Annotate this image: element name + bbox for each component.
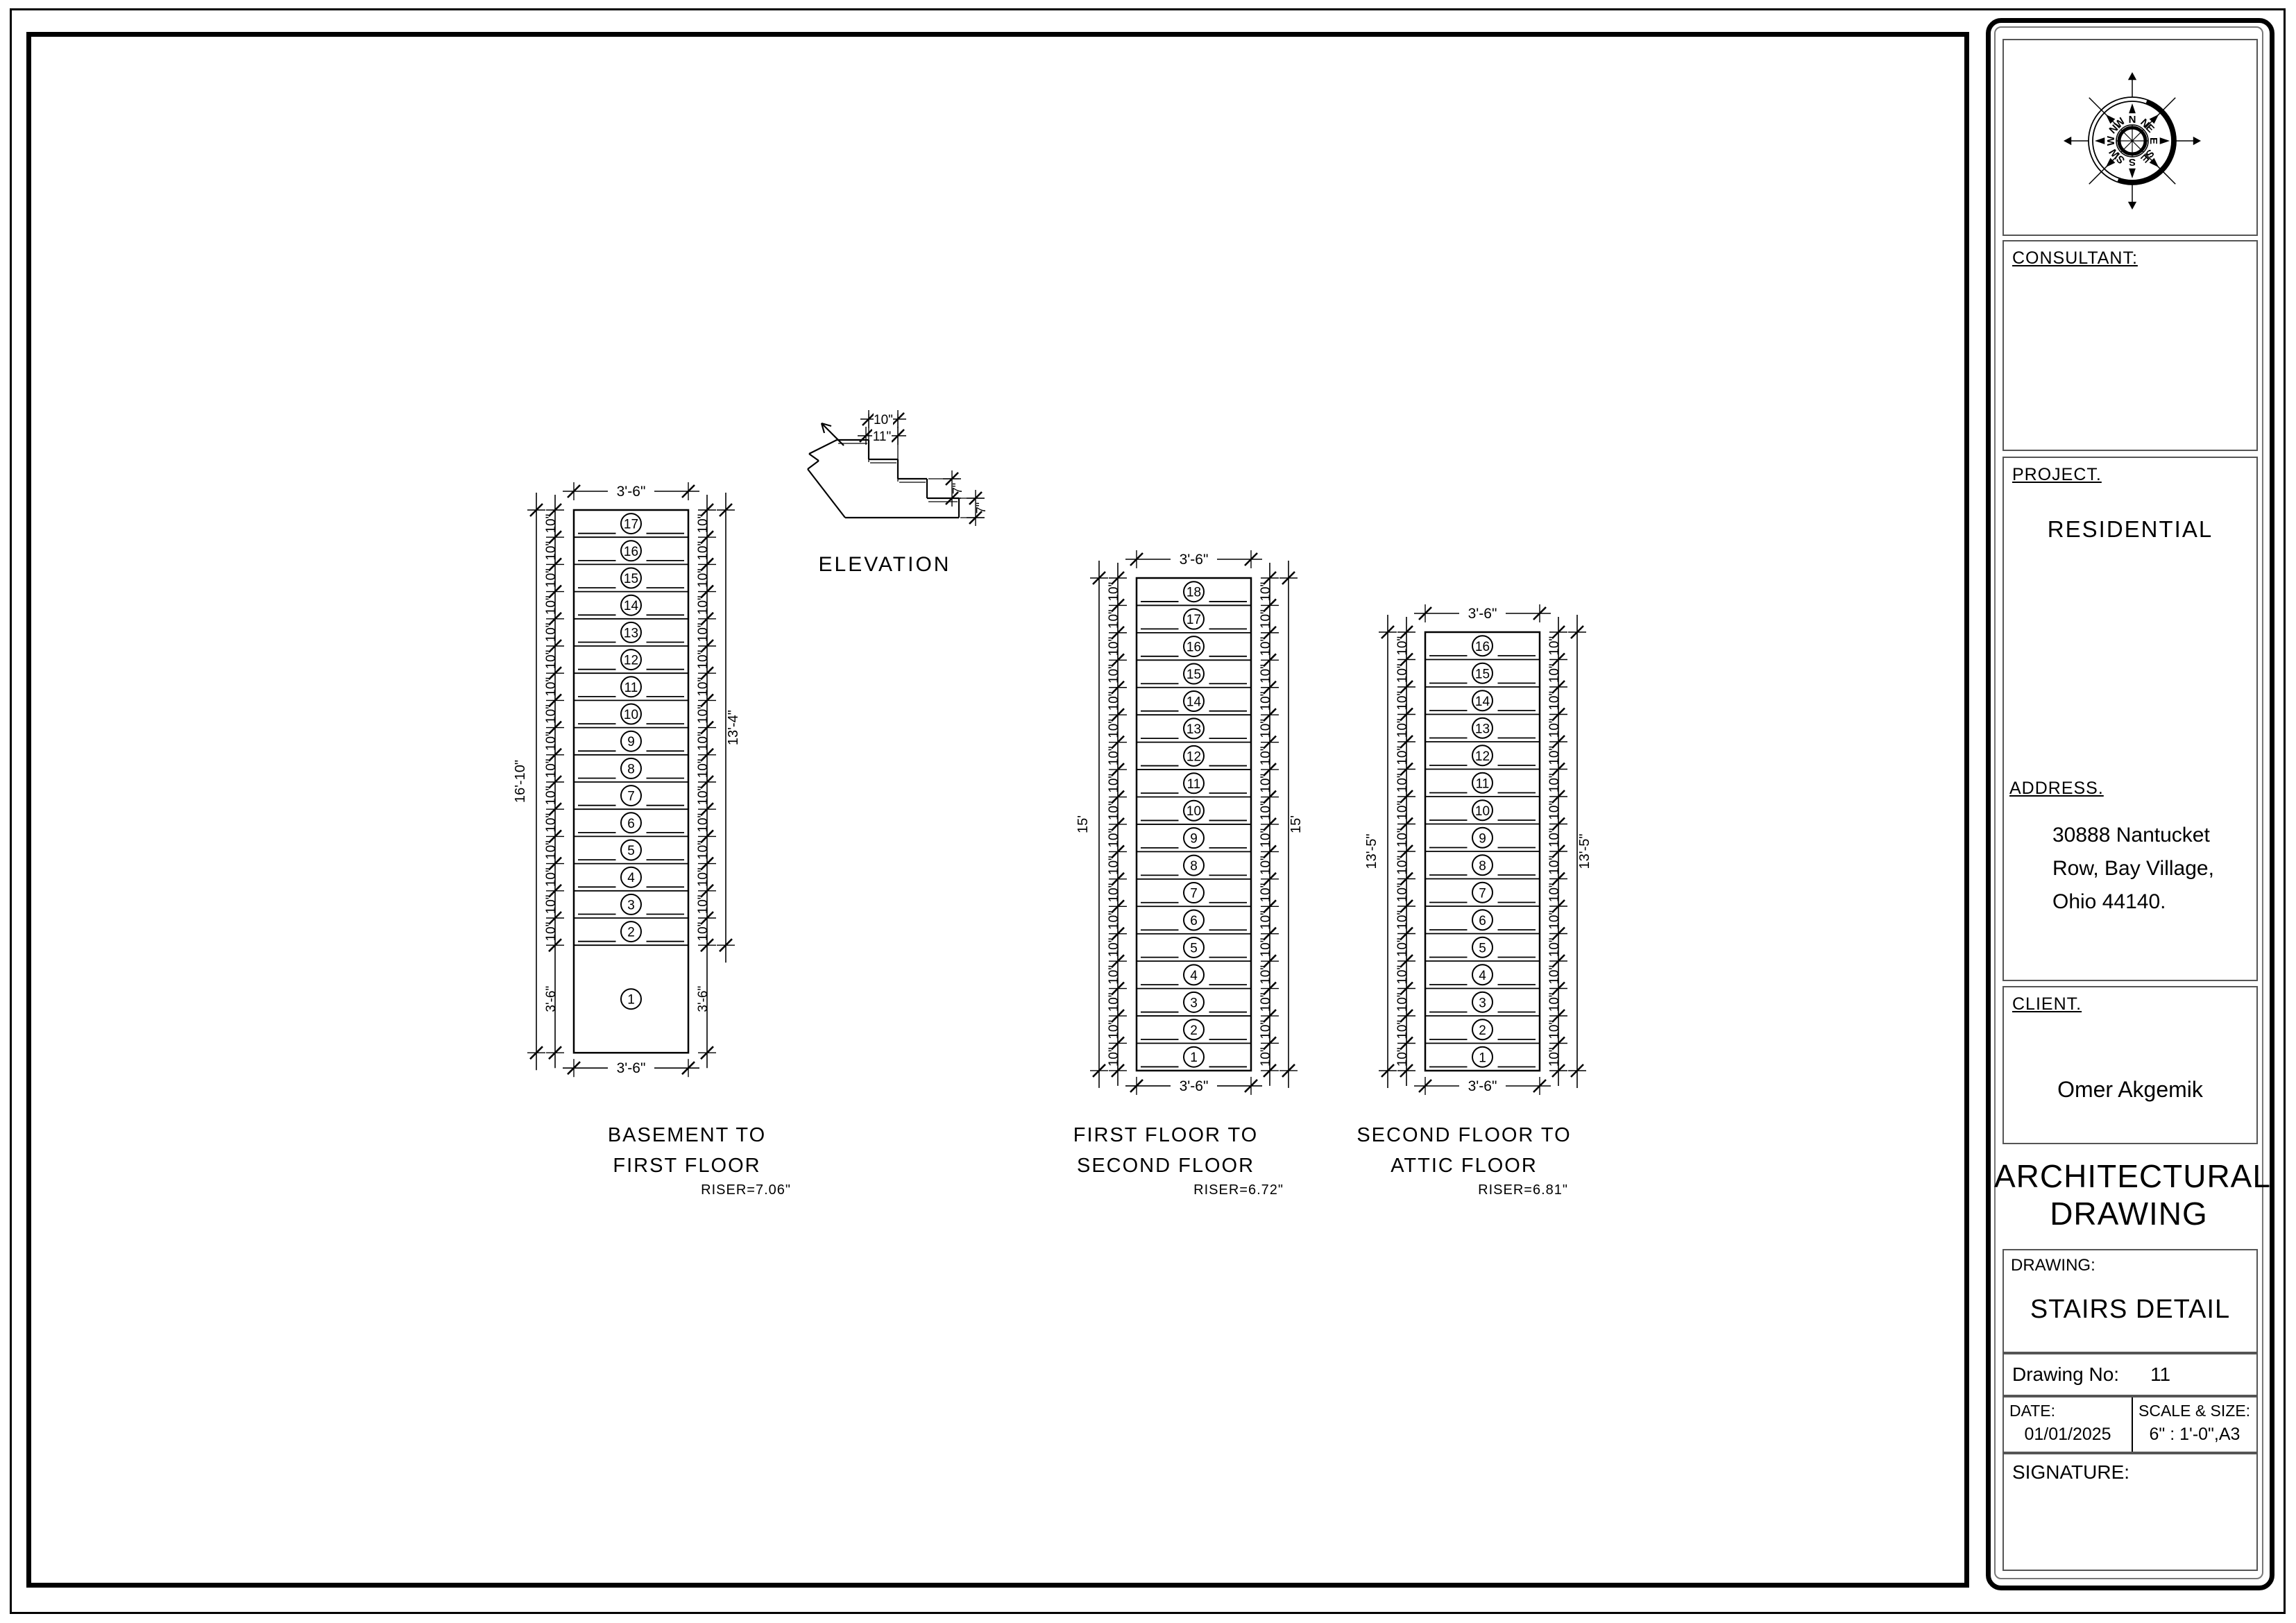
svg-text:S: S (2129, 156, 2136, 168)
svg-text:15': 15' (1289, 815, 1304, 833)
scale-cell: SCALE & SIZE: 6" : 1'-0",A3 (2133, 1397, 2256, 1452)
signature-section: SIGNATURE: (2002, 1453, 2258, 1571)
tread-row: 7 (1425, 883, 1540, 906)
svg-text:10": 10" (696, 704, 711, 724)
svg-text:10": 10" (1259, 1047, 1273, 1067)
svg-text:10": 10" (1395, 992, 1410, 1012)
svg-text:10": 10" (544, 894, 559, 914)
svg-text:10": 10" (1395, 1020, 1410, 1039)
svg-text:10": 10" (1547, 910, 1562, 930)
tread-row: 16 (1425, 636, 1540, 659)
svg-text:8: 8 (627, 762, 635, 776)
drawing-no-value: 11 (2119, 1363, 2170, 1386)
svg-text:3: 3 (1190, 996, 1198, 1010)
svg-text:10": 10" (874, 413, 893, 427)
svg-text:7: 7 (1190, 887, 1198, 901)
svg-text:10": 10" (696, 758, 711, 778)
stair2-riser-note: RISER=6.72" (1006, 1182, 1284, 1198)
svg-text:10": 10" (1259, 883, 1273, 903)
svg-text:10": 10" (1107, 965, 1121, 985)
svg-text:11": 11" (873, 430, 891, 444)
svg-text:10": 10" (1259, 856, 1273, 875)
svg-text:12: 12 (624, 654, 638, 668)
svg-text:14: 14 (624, 599, 639, 613)
drawing-value: STAIRS DETAIL (2004, 1295, 2256, 1325)
tread-row: 10 (574, 704, 688, 728)
svg-text:10": 10" (696, 595, 711, 615)
date-scale-section: DATE: 01/01/2025 SCALE & SIZE: 6" : 1'-0… (2002, 1396, 2258, 1453)
svg-text:10": 10" (1395, 746, 1410, 765)
svg-text:7": 7" (974, 502, 988, 513)
svg-text:10": 10" (1259, 910, 1273, 930)
svg-text:10": 10" (1547, 883, 1562, 902)
svg-text:17: 17 (1187, 613, 1201, 627)
stair3-riser-note: RISER=6.81" (1304, 1182, 1568, 1198)
drawing-label: DRAWING: (2004, 1250, 2256, 1275)
svg-text:6: 6 (627, 817, 635, 831)
drawing-no-label: Drawing No: (2004, 1363, 2119, 1386)
address-line-1: 30888 Nantucket (2052, 819, 2214, 852)
tread-row: 3 (1137, 992, 1251, 1016)
svg-text:10: 10 (1187, 804, 1201, 819)
svg-text:12: 12 (1475, 749, 1490, 764)
svg-text:10": 10" (1547, 691, 1562, 711)
svg-text:5: 5 (627, 844, 635, 858)
svg-text:10": 10" (544, 677, 559, 697)
svg-text:10": 10" (1259, 637, 1273, 656)
svg-text:13'-4": 13'-4" (726, 710, 741, 745)
svg-text:10": 10" (1107, 937, 1121, 957)
svg-text:10": 10" (544, 922, 559, 942)
svg-text:4: 4 (1479, 969, 1486, 983)
svg-text:13: 13 (1475, 722, 1490, 736)
svg-text:9: 9 (627, 735, 635, 749)
svg-text:3'-6": 3'-6" (696, 986, 711, 1012)
tread-row: 14 (574, 595, 688, 619)
svg-text:10": 10" (544, 731, 559, 751)
scale-value: 6" : 1'-0",A3 (2133, 1425, 2256, 1445)
svg-text:11: 11 (624, 681, 638, 695)
svg-text:9: 9 (1190, 832, 1198, 847)
svg-text:7: 7 (1479, 886, 1486, 901)
svg-text:10": 10" (696, 786, 711, 806)
svg-text:3'-6": 3'-6" (617, 1060, 646, 1076)
document-type-title: ARCHITECTURAL DRAWING (1994, 1157, 2263, 1232)
svg-text:10": 10" (1107, 1020, 1121, 1039)
svg-text:10": 10" (1107, 856, 1121, 875)
tread-row: 11 (1425, 773, 1540, 797)
svg-text:4: 4 (1190, 969, 1198, 983)
svg-text:10": 10" (544, 650, 559, 670)
svg-text:10": 10" (1259, 937, 1273, 957)
stair1-title: BASEMENT TO FIRST FLOOR (527, 1120, 847, 1181)
svg-text:10": 10" (1107, 719, 1121, 738)
tread-row: 16 (574, 541, 688, 564)
svg-text:E: E (2148, 137, 2159, 144)
svg-text:15': 15' (1075, 815, 1091, 833)
client-value: Omer Akgemik (2004, 1077, 2256, 1103)
stair-plan-basement-to-first: 17161514131211109876543213'-6"3'-6"10"10… (486, 458, 777, 1096)
svg-text:10": 10" (1547, 773, 1562, 792)
svg-text:1: 1 (627, 993, 635, 1008)
landing: 1 (621, 989, 641, 1009)
svg-text:10": 10" (696, 568, 711, 588)
svg-text:10": 10" (696, 894, 711, 914)
svg-text:10": 10" (1107, 582, 1121, 602)
client-section: CLIENT. Omer Akgemik (2002, 986, 2258, 1144)
tread-row: 15 (574, 568, 688, 592)
svg-text:2: 2 (1190, 1023, 1198, 1038)
svg-text:10": 10" (1547, 718, 1562, 738)
svg-text:5: 5 (1479, 941, 1486, 955)
svg-text:10": 10" (1395, 1047, 1410, 1067)
tread-row: 8 (1137, 856, 1251, 879)
tread-row: 9 (1137, 828, 1251, 851)
project-label: PROJECT. (2004, 458, 2256, 485)
tread-row: 18 (1137, 581, 1251, 605)
svg-text:10": 10" (544, 813, 559, 833)
svg-text:10": 10" (1259, 664, 1273, 683)
svg-text:10": 10" (1107, 746, 1121, 765)
stair-plan-second-to-attic: 161514131211109876543213'-6"3'-6"10"10"1… (1364, 583, 1628, 1138)
stair1-title-line1: BASEMENT TO (527, 1120, 847, 1150)
address-label: ADDRESS. (2009, 779, 2104, 799)
svg-text:10": 10" (1107, 910, 1121, 930)
svg-text:11: 11 (1476, 776, 1490, 791)
svg-text:11: 11 (1187, 777, 1201, 792)
svg-text:10": 10" (544, 541, 559, 561)
svg-text:10": 10" (1547, 965, 1562, 985)
tread-row: 9 (574, 731, 688, 755)
svg-text:10": 10" (1547, 992, 1562, 1012)
dimensions: 3'-6"3'-6"10"10"10"10"10"10"10"10"10"10"… (1075, 550, 1304, 1095)
tread-row: 4 (1425, 965, 1540, 988)
elevation-title: ELEVATION (770, 553, 999, 577)
tread-row: 5 (1137, 937, 1251, 961)
tread-row: 5 (1425, 937, 1540, 961)
svg-text:5: 5 (1190, 941, 1198, 955)
client-label: CLIENT. (2004, 987, 2256, 1014)
svg-text:10": 10" (544, 786, 559, 806)
svg-text:1: 1 (1479, 1051, 1486, 1065)
date-value: 01/01/2025 (2004, 1425, 2132, 1445)
svg-text:10": 10" (696, 622, 711, 642)
svg-text:10": 10" (1547, 1020, 1562, 1039)
tread-row: 3 (574, 894, 688, 918)
svg-text:10": 10" (696, 514, 711, 534)
svg-text:9: 9 (1479, 831, 1486, 846)
svg-text:10": 10" (1259, 801, 1273, 820)
tread-row: 3 (1425, 992, 1540, 1016)
svg-text:10": 10" (1107, 801, 1121, 820)
svg-text:10": 10" (1547, 856, 1562, 875)
tread-row: 2 (574, 921, 688, 945)
svg-text:10": 10" (1395, 663, 1410, 683)
svg-text:10": 10" (1395, 965, 1410, 985)
svg-text:10": 10" (1259, 746, 1273, 765)
tread-row: 5 (574, 840, 688, 864)
tread-row: 7 (574, 785, 688, 809)
tread-row: 13 (574, 622, 688, 646)
tread-row: 15 (1425, 663, 1540, 687)
tread-row: 17 (574, 513, 688, 537)
svg-text:7": 7" (951, 483, 964, 494)
tread-row: 13 (1425, 718, 1540, 742)
stair-elevation-detail: 10"11"7"7" (777, 396, 1006, 569)
tread-row: 1 (1141, 1047, 1247, 1067)
stair1-title-line2: FIRST FLOOR (527, 1150, 847, 1181)
svg-text:8: 8 (1190, 859, 1198, 874)
svg-text:1: 1 (1190, 1051, 1198, 1065)
consultant-section: CONSULTANT: (2002, 240, 2258, 451)
svg-text:10": 10" (1395, 636, 1410, 656)
svg-text:10": 10" (1395, 937, 1410, 957)
svg-text:15: 15 (624, 572, 638, 586)
svg-text:10": 10" (1107, 883, 1121, 903)
tread-row: 4 (574, 867, 688, 891)
svg-text:10": 10" (1107, 609, 1121, 629)
svg-text:10": 10" (1547, 801, 1562, 820)
svg-text:2: 2 (1479, 1023, 1486, 1038)
svg-text:10": 10" (1547, 663, 1562, 683)
svg-text:10": 10" (1107, 829, 1121, 848)
svg-text:10": 10" (1107, 637, 1121, 656)
svg-text:3'-6": 3'-6" (617, 484, 646, 500)
tread-row: 6 (574, 813, 688, 836)
svg-text:10": 10" (1395, 856, 1410, 875)
drawing-section: DRAWING: STAIRS DETAIL (2002, 1249, 2258, 1353)
stair2-title-line2: SECOND FLOOR (1006, 1150, 1325, 1181)
svg-text:13: 13 (1187, 722, 1201, 737)
svg-text:4: 4 (627, 871, 635, 885)
svg-text:N: N (2129, 114, 2136, 126)
svg-text:3'-6": 3'-6" (544, 986, 559, 1012)
svg-text:10": 10" (1259, 692, 1273, 711)
svg-text:10": 10" (696, 922, 711, 942)
svg-text:14: 14 (1475, 695, 1490, 709)
svg-text:10": 10" (1107, 664, 1121, 683)
compass-rose-icon: NNEESESSWWNW (2059, 68, 2205, 214)
svg-text:10": 10" (544, 568, 559, 588)
svg-text:3: 3 (627, 898, 635, 912)
svg-text:16: 16 (1475, 640, 1490, 654)
tread-row: 13 (1137, 718, 1251, 742)
tread-row: 6 (1425, 910, 1540, 933)
svg-text:2: 2 (627, 926, 635, 940)
stair-plan-first-to-second: 1817161514131211109876543213'-6"3'-6"10"… (1075, 527, 1339, 1138)
scale-label: SCALE & SIZE: (2133, 1397, 2256, 1420)
tread-row: 11 (574, 677, 688, 700)
stair3-title-line2: ATTIC FLOOR (1304, 1150, 1624, 1181)
svg-text:10": 10" (1259, 829, 1273, 848)
tread-row: 14 (1137, 691, 1251, 715)
stair1-riser-note: RISER=7.06" (527, 1182, 791, 1198)
svg-text:10": 10" (1395, 773, 1410, 792)
tread-row: 6 (1137, 910, 1251, 934)
tread-row: 12 (1425, 745, 1540, 769)
stair2-title-line1: FIRST FLOOR TO (1006, 1120, 1325, 1150)
svg-text:10": 10" (544, 622, 559, 642)
svg-text:10": 10" (1547, 828, 1562, 847)
svg-text:10": 10" (1395, 691, 1410, 711)
tread-row: 4 (1137, 965, 1251, 988)
svg-text:10": 10" (544, 514, 559, 534)
drawing-no-section: Drawing No: 11 (2002, 1353, 2258, 1396)
drawing-area (26, 32, 1969, 1588)
tread-row: 10 (1425, 800, 1540, 824)
svg-text:7: 7 (627, 790, 635, 804)
svg-text:13: 13 (624, 626, 638, 640)
svg-text:10": 10" (696, 731, 711, 751)
svg-text:17: 17 (624, 518, 638, 532)
svg-text:3'-6": 3'-6" (1468, 1078, 1497, 1094)
svg-text:10": 10" (1259, 719, 1273, 738)
svg-text:10": 10" (544, 704, 559, 724)
svg-text:16'-10": 16'-10" (513, 760, 528, 803)
svg-text:10": 10" (1107, 992, 1121, 1012)
tread-row: 8 (574, 758, 688, 782)
svg-text:10": 10" (1395, 801, 1410, 820)
svg-text:8: 8 (1479, 859, 1486, 874)
address-value: 30888 Nantucket Row, Bay Village, Ohio 4… (2052, 819, 2214, 919)
tread-row: 2 (1425, 1019, 1540, 1043)
svg-text:10": 10" (696, 867, 711, 887)
address-line-3: Ohio 44140. (2052, 885, 2214, 919)
svg-text:10": 10" (696, 813, 711, 833)
tread-row: 2 (1137, 1019, 1251, 1043)
svg-text:10": 10" (1547, 1047, 1562, 1067)
tread-row: 10 (1137, 801, 1251, 824)
svg-text:10": 10" (1259, 1020, 1273, 1039)
svg-text:10": 10" (1259, 774, 1273, 793)
svg-text:10": 10" (1259, 992, 1273, 1012)
tread-row: 14 (1425, 690, 1540, 714)
svg-text:10": 10" (1395, 718, 1410, 738)
tread-row: 11 (1137, 773, 1251, 797)
stair3-title: SECOND FLOOR TO ATTIC FLOOR (1304, 1120, 1624, 1181)
svg-text:6: 6 (1190, 914, 1198, 928)
svg-text:13'-5": 13'-5" (1577, 834, 1592, 869)
svg-text:10": 10" (544, 840, 559, 860)
svg-text:10": 10" (1107, 1047, 1121, 1067)
tread-row: 7 (1137, 883, 1251, 906)
tread-row: 1 (1429, 1047, 1536, 1067)
svg-text:10": 10" (1259, 965, 1273, 985)
svg-text:10: 10 (1475, 804, 1490, 819)
signature-label: SIGNATURE: (2004, 1454, 2256, 1484)
date-cell: DATE: 01/01/2025 (2004, 1397, 2132, 1452)
svg-text:10": 10" (696, 840, 711, 860)
svg-text:10": 10" (1547, 746, 1562, 765)
tread-row: 9 (1425, 828, 1540, 851)
svg-text:15: 15 (1475, 667, 1490, 681)
consultant-label: CONSULTANT: (2004, 241, 2256, 269)
tread-row: 12 (574, 649, 688, 673)
svg-text:10": 10" (544, 867, 559, 887)
svg-text:10": 10" (1547, 636, 1562, 656)
svg-text:10": 10" (1259, 582, 1273, 602)
svg-text:13'-5": 13'-5" (1364, 834, 1379, 869)
tread-row: 17 (1137, 609, 1251, 633)
project-value: RESIDENTIAL (2004, 516, 2256, 543)
svg-text:15: 15 (1187, 668, 1201, 682)
date-label: DATE: (2004, 1397, 2132, 1420)
svg-text:10": 10" (1259, 609, 1273, 629)
svg-text:10": 10" (1107, 692, 1121, 711)
address-line-2: Row, Bay Village, (2052, 852, 2214, 885)
stair2-title: FIRST FLOOR TO SECOND FLOOR (1006, 1120, 1325, 1181)
svg-text:10": 10" (544, 595, 559, 615)
svg-text:10": 10" (1395, 910, 1410, 930)
svg-text:16: 16 (1187, 640, 1201, 655)
tread-row: 8 (1425, 855, 1540, 878)
svg-text:3'-6": 3'-6" (1180, 552, 1209, 568)
tread-row: 12 (1137, 746, 1251, 770)
svg-text:3: 3 (1479, 996, 1486, 1010)
svg-text:12: 12 (1187, 749, 1201, 764)
svg-text:10": 10" (696, 541, 711, 561)
svg-text:14: 14 (1187, 695, 1202, 709)
svg-text:10": 10" (1395, 828, 1410, 847)
svg-text:3'-6": 3'-6" (1180, 1078, 1209, 1094)
svg-text:10": 10" (1547, 937, 1562, 957)
svg-text:10: 10 (624, 708, 638, 722)
svg-text:10": 10" (696, 650, 711, 670)
svg-text:10": 10" (1395, 883, 1410, 902)
svg-text:18: 18 (1187, 586, 1201, 600)
svg-text:10": 10" (544, 758, 559, 778)
svg-text:W: W (2105, 135, 2117, 146)
tread-row: 16 (1137, 636, 1251, 660)
svg-text:6: 6 (1479, 914, 1486, 928)
svg-text:10": 10" (696, 677, 711, 697)
svg-text:10": 10" (1107, 774, 1121, 793)
tread-row: 15 (1137, 664, 1251, 688)
svg-text:16: 16 (624, 545, 638, 559)
stair3-title-line1: SECOND FLOOR TO (1304, 1120, 1624, 1150)
svg-text:3'-6": 3'-6" (1468, 606, 1497, 622)
